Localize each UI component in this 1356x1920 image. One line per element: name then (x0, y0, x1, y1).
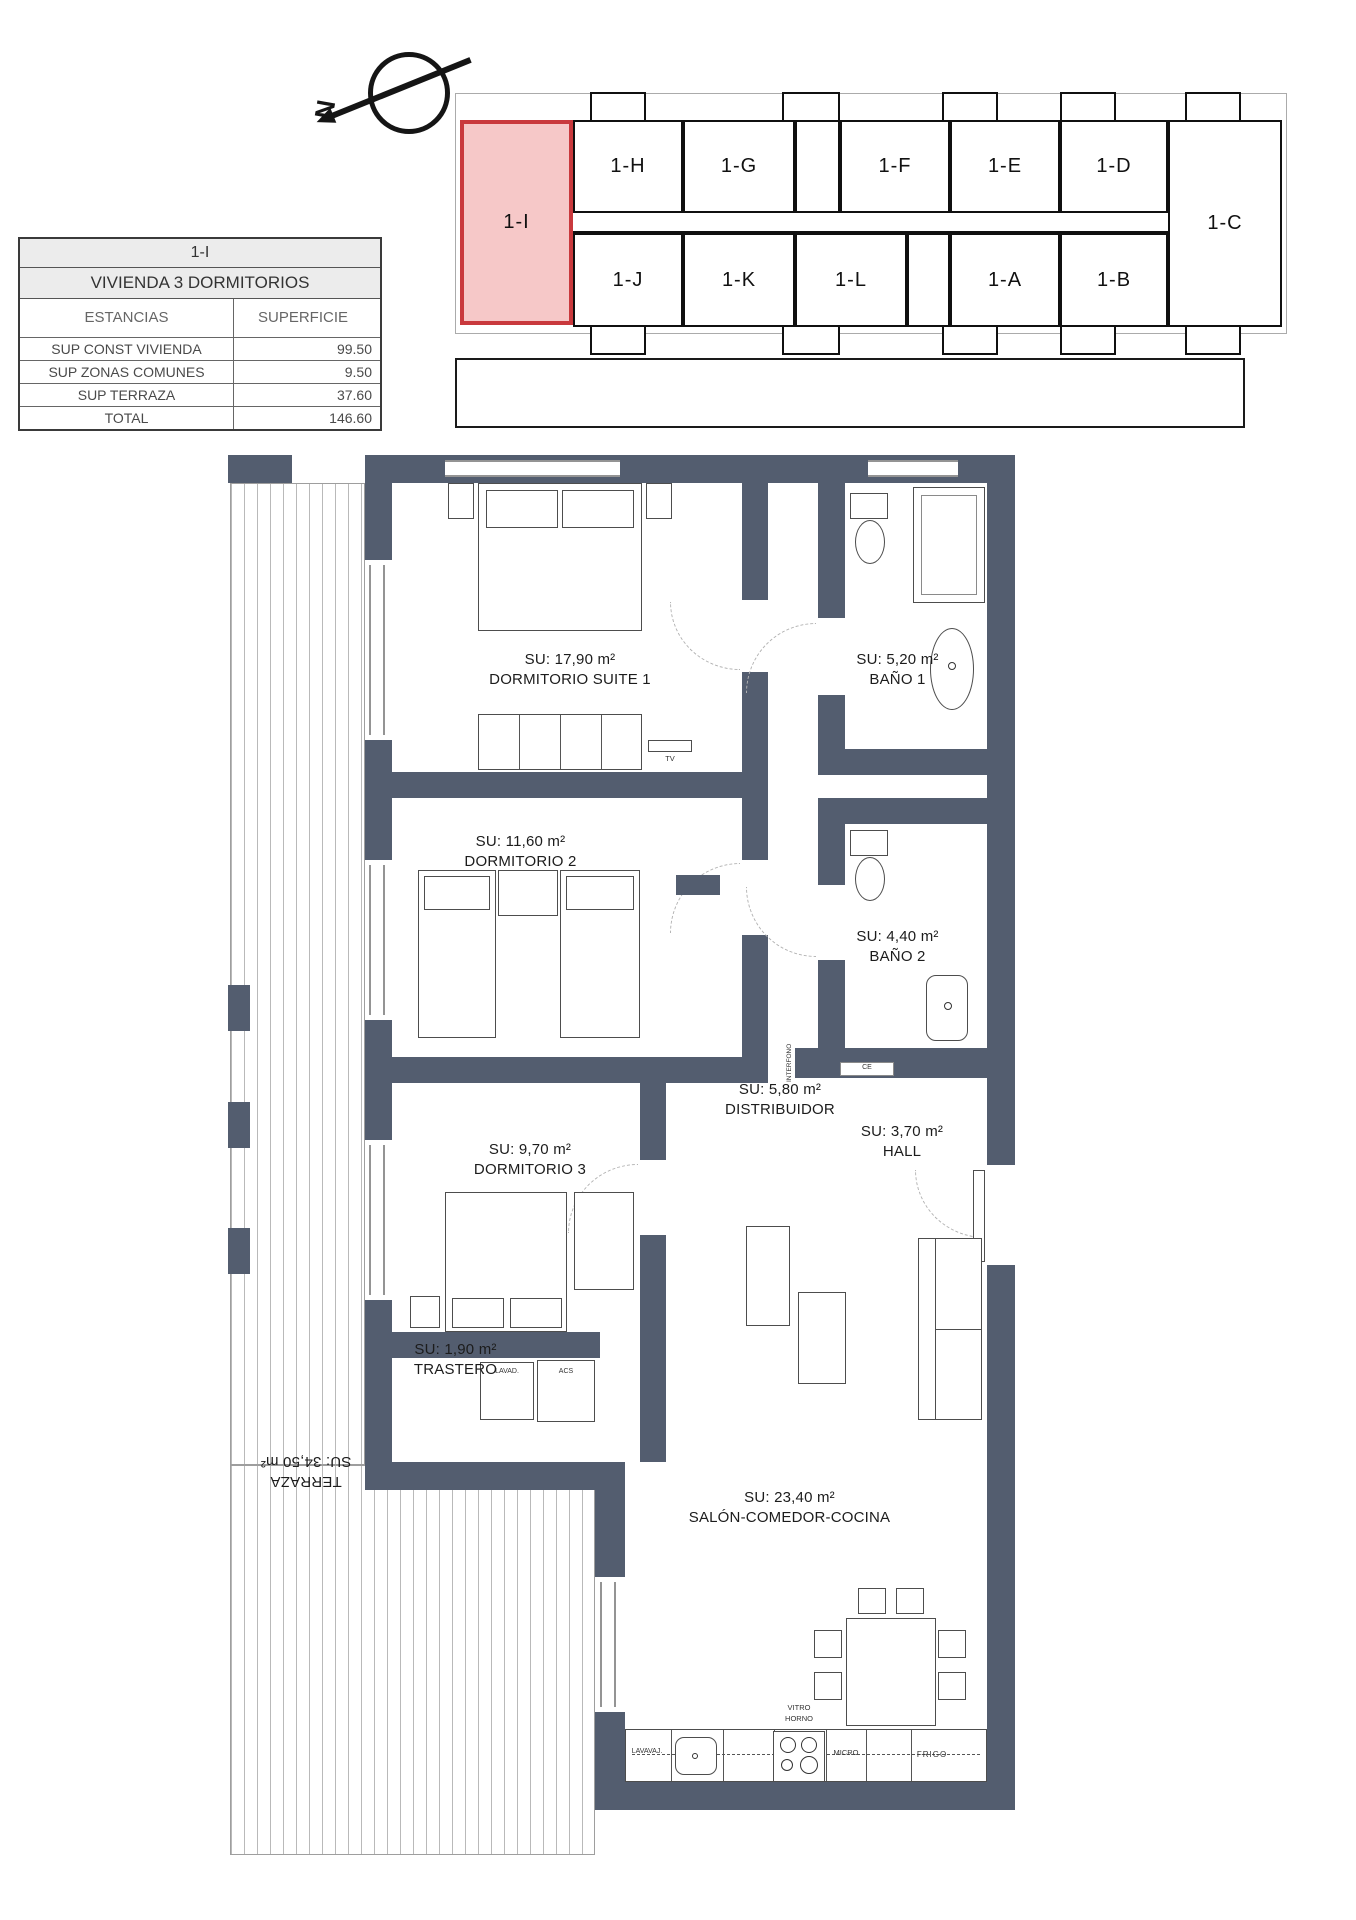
window (445, 460, 620, 477)
burner (781, 1759, 793, 1771)
room-area: SU: 34,50 m² (240, 1452, 372, 1472)
wall-segment (818, 695, 845, 749)
row-value: 146.60 (234, 407, 380, 429)
table-row: SUP TERRAZA 37.60 (20, 384, 380, 407)
terrace-decking (230, 1465, 595, 1855)
room-name: DORMITORIO 3 (430, 1160, 630, 1180)
wall-segment (640, 1332, 666, 1358)
chair (814, 1672, 842, 1700)
room-name: HALL (843, 1142, 961, 1162)
frigo-label: FRIGO (906, 1750, 958, 1759)
radiator (676, 875, 720, 895)
floorplan-sheet: N 1-I VIVIENDA 3 DORMITORIOS ESTANCIAS S… (0, 0, 1356, 1920)
room-name: TRASTERO (383, 1360, 528, 1380)
info-table-type: VIVIENDA 3 DORMITORIOS (20, 268, 380, 299)
wall-segment (392, 772, 768, 798)
toilet-bowl (855, 520, 885, 564)
pillow (486, 490, 558, 528)
pillar (228, 1228, 250, 1274)
col-header-estancias: ESTANCIAS (20, 299, 234, 337)
terrace-decking (230, 483, 365, 1465)
key-plan-unit-1C: 1-C (1168, 120, 1282, 327)
room-area: SU: 5,80 m² (700, 1080, 860, 1100)
pillow (452, 1298, 504, 1328)
wall-segment (987, 483, 1015, 1165)
wall-segment (640, 1235, 666, 1332)
wall-segment (228, 455, 292, 483)
nightstand (410, 1296, 440, 1328)
row-label: TOTAL (20, 407, 234, 429)
room-label-bano2: SU: 4,40 m² BAÑO 2 (835, 927, 960, 966)
sink-drain (692, 1753, 698, 1759)
chair (858, 1588, 886, 1614)
wall-segment (640, 1358, 666, 1462)
room-name: SALÓN-COMEDOR-COCINA (652, 1508, 927, 1528)
stair-tab (782, 92, 840, 122)
wall-segment (595, 1712, 625, 1810)
stair-tab (590, 92, 646, 122)
key-plan-core (795, 120, 840, 213)
wall-segment (818, 824, 845, 885)
tv-unit (648, 740, 692, 752)
toilet-bowl (855, 857, 885, 901)
wardrobe (574, 1192, 634, 1290)
key-plan-unit-1F: 1-F (840, 120, 950, 213)
wall-segment (392, 1462, 625, 1490)
door-swing-arc (670, 602, 740, 670)
room-label-trastero: SU: 1,90 m² TRASTERO (383, 1340, 528, 1379)
nightstand (646, 483, 672, 519)
row-label: SUP CONST VIVIENDA (20, 338, 234, 360)
key-plan-lower-band (455, 358, 1245, 428)
toilet (850, 830, 888, 856)
key-plan-unit-1H: 1-H (573, 120, 683, 213)
wall-segment (818, 483, 845, 618)
nightstand (448, 483, 474, 519)
key-plan-unit-1L: 1-L (795, 233, 907, 327)
terrace-slider (369, 565, 385, 735)
table-row: TOTAL 146.60 (20, 407, 380, 429)
room-label-dorm3: SU: 9,70 m² DORMITORIO 3 (430, 1140, 630, 1179)
room-name: DORMITORIO 2 (428, 852, 613, 872)
key-plan-unit-1G: 1-G (683, 120, 795, 213)
chair (814, 1630, 842, 1658)
burner (780, 1737, 796, 1753)
terrace-slider (369, 865, 385, 1015)
info-table-unit: 1-I (20, 239, 380, 268)
key-plan-stair (907, 233, 950, 327)
table-row: SUP ZONAS COMUNES 9.50 (20, 361, 380, 384)
row-value: 37.60 (234, 384, 380, 406)
wall-segment (818, 798, 1015, 824)
room-label-terraza: TERRAZA SU: 34,50 m² (240, 1452, 372, 1491)
vitro-label: VITRO (762, 1703, 836, 1712)
chair (938, 1672, 966, 1700)
nightstand (498, 870, 558, 916)
room-area: SU: 1,90 m² (383, 1340, 528, 1360)
pillow (424, 876, 490, 910)
wall-segment (640, 1083, 666, 1160)
coffee-table (798, 1292, 846, 1384)
room-name: DORMITORIO SUITE 1 (470, 670, 670, 690)
wall-segment (818, 749, 1015, 775)
stair-tab (782, 325, 840, 355)
wall-segment (365, 740, 392, 860)
room-label-bano1: SU: 5,20 m² BAÑO 1 (835, 650, 960, 689)
room-area: SU: 9,70 m² (430, 1140, 630, 1160)
row-label: SUP TERRAZA (20, 384, 234, 406)
stair-tab (590, 325, 646, 355)
room-name: BAÑO 1 (835, 670, 960, 690)
counter-divider (671, 1730, 672, 1781)
row-value: 9.50 (234, 361, 380, 383)
electrical-box-label: CE (840, 1064, 894, 1071)
table-row: SUP CONST VIVIENDA 99.50 (20, 338, 380, 361)
room-area: SU: 11,60 m² (428, 832, 613, 852)
key-plan-unit-1K: 1-K (683, 233, 795, 327)
stair-tab (1060, 92, 1116, 122)
wall-segment (365, 1020, 392, 1140)
pillow (566, 876, 634, 910)
wall-segment (818, 960, 845, 1048)
row-label: SUP ZONAS COMUNES (20, 361, 234, 383)
key-plan-unit-1A: 1-A (950, 233, 1060, 327)
wall-segment (595, 1782, 1015, 1810)
key-plan-unit-1D: 1-D (1060, 120, 1168, 213)
key-plan-unit-1B: 1-B (1060, 233, 1168, 327)
sideboard (746, 1226, 790, 1326)
room-name: DISTRIBUIDOR (700, 1100, 860, 1120)
faucet (944, 1002, 952, 1010)
dining-table (846, 1618, 936, 1726)
lavavajillas-label: LAVAVAJ. (623, 1748, 671, 1755)
col-header-superficie: SUPERFICIE (234, 299, 380, 337)
key-plan-unit-1I-highlighted: 1-I (460, 120, 573, 325)
micro-label: MICRO (826, 1748, 866, 1757)
row-value: 99.50 (234, 338, 380, 360)
room-area: SU: 17,90 m² (470, 650, 670, 670)
chair (896, 1588, 924, 1614)
sofa-line (935, 1329, 981, 1330)
stair-tab (1185, 92, 1241, 122)
toilet (850, 493, 888, 519)
water-heater-label: ACS (537, 1368, 595, 1375)
tv-label: TV (646, 754, 694, 763)
wall-segment (365, 455, 392, 560)
door-swing-arc (746, 623, 816, 693)
info-table: 1-I VIVIENDA 3 DORMITORIOS ESTANCIAS SUP… (18, 237, 382, 431)
window (868, 460, 958, 477)
wall-segment (742, 935, 768, 1060)
burner (800, 1756, 818, 1774)
shower-tray (921, 495, 977, 595)
room-area: SU: 3,70 m² (843, 1122, 961, 1142)
pillow (562, 490, 634, 528)
room-area: SU: 5,20 m² (835, 650, 960, 670)
room-area: SU: 23,40 m² (652, 1488, 927, 1508)
room-name: TERRAZA (240, 1472, 372, 1492)
wall-segment (742, 798, 768, 860)
counter-divider (866, 1730, 867, 1781)
counter-divider (723, 1730, 724, 1781)
stair-tab (942, 92, 998, 122)
terrace-slider (600, 1582, 616, 1707)
stair-tab (942, 325, 998, 355)
room-name: BAÑO 2 (835, 947, 960, 967)
room-area: SU: 4,40 m² (835, 927, 960, 947)
sofa (918, 1238, 982, 1420)
terrace-slider (369, 1145, 385, 1295)
room-label-dorm2: SU: 11,60 m² DORMITORIO 2 (428, 832, 613, 871)
horno-label: HORNO (762, 1714, 836, 1723)
key-plan-unit-1J: 1-J (573, 233, 683, 327)
wall-segment (987, 1265, 1015, 1782)
pillow (510, 1298, 562, 1328)
room-label-hall: SU: 3,70 m² HALL (843, 1122, 961, 1161)
room-label-suite: SU: 17,90 m² DORMITORIO SUITE 1 (470, 650, 670, 689)
burner (801, 1737, 817, 1753)
room-label-salon: SU: 23,40 m² SALÓN-COMEDOR-COCINA (652, 1488, 927, 1527)
cooktop (773, 1731, 825, 1782)
stair-tab (1185, 325, 1241, 355)
wall-segment (742, 483, 768, 600)
door-swing-arc (670, 863, 740, 933)
pillar (228, 1102, 250, 1148)
stair-tab (1060, 325, 1116, 355)
wardrobe (478, 714, 642, 770)
chair (938, 1630, 966, 1658)
north-letter: N (308, 98, 342, 122)
room-label-distribuidor: SU: 5,80 m² DISTRIBUIDOR (700, 1080, 860, 1119)
key-plan-unit-1E: 1-E (950, 120, 1060, 213)
pillar (228, 985, 250, 1031)
